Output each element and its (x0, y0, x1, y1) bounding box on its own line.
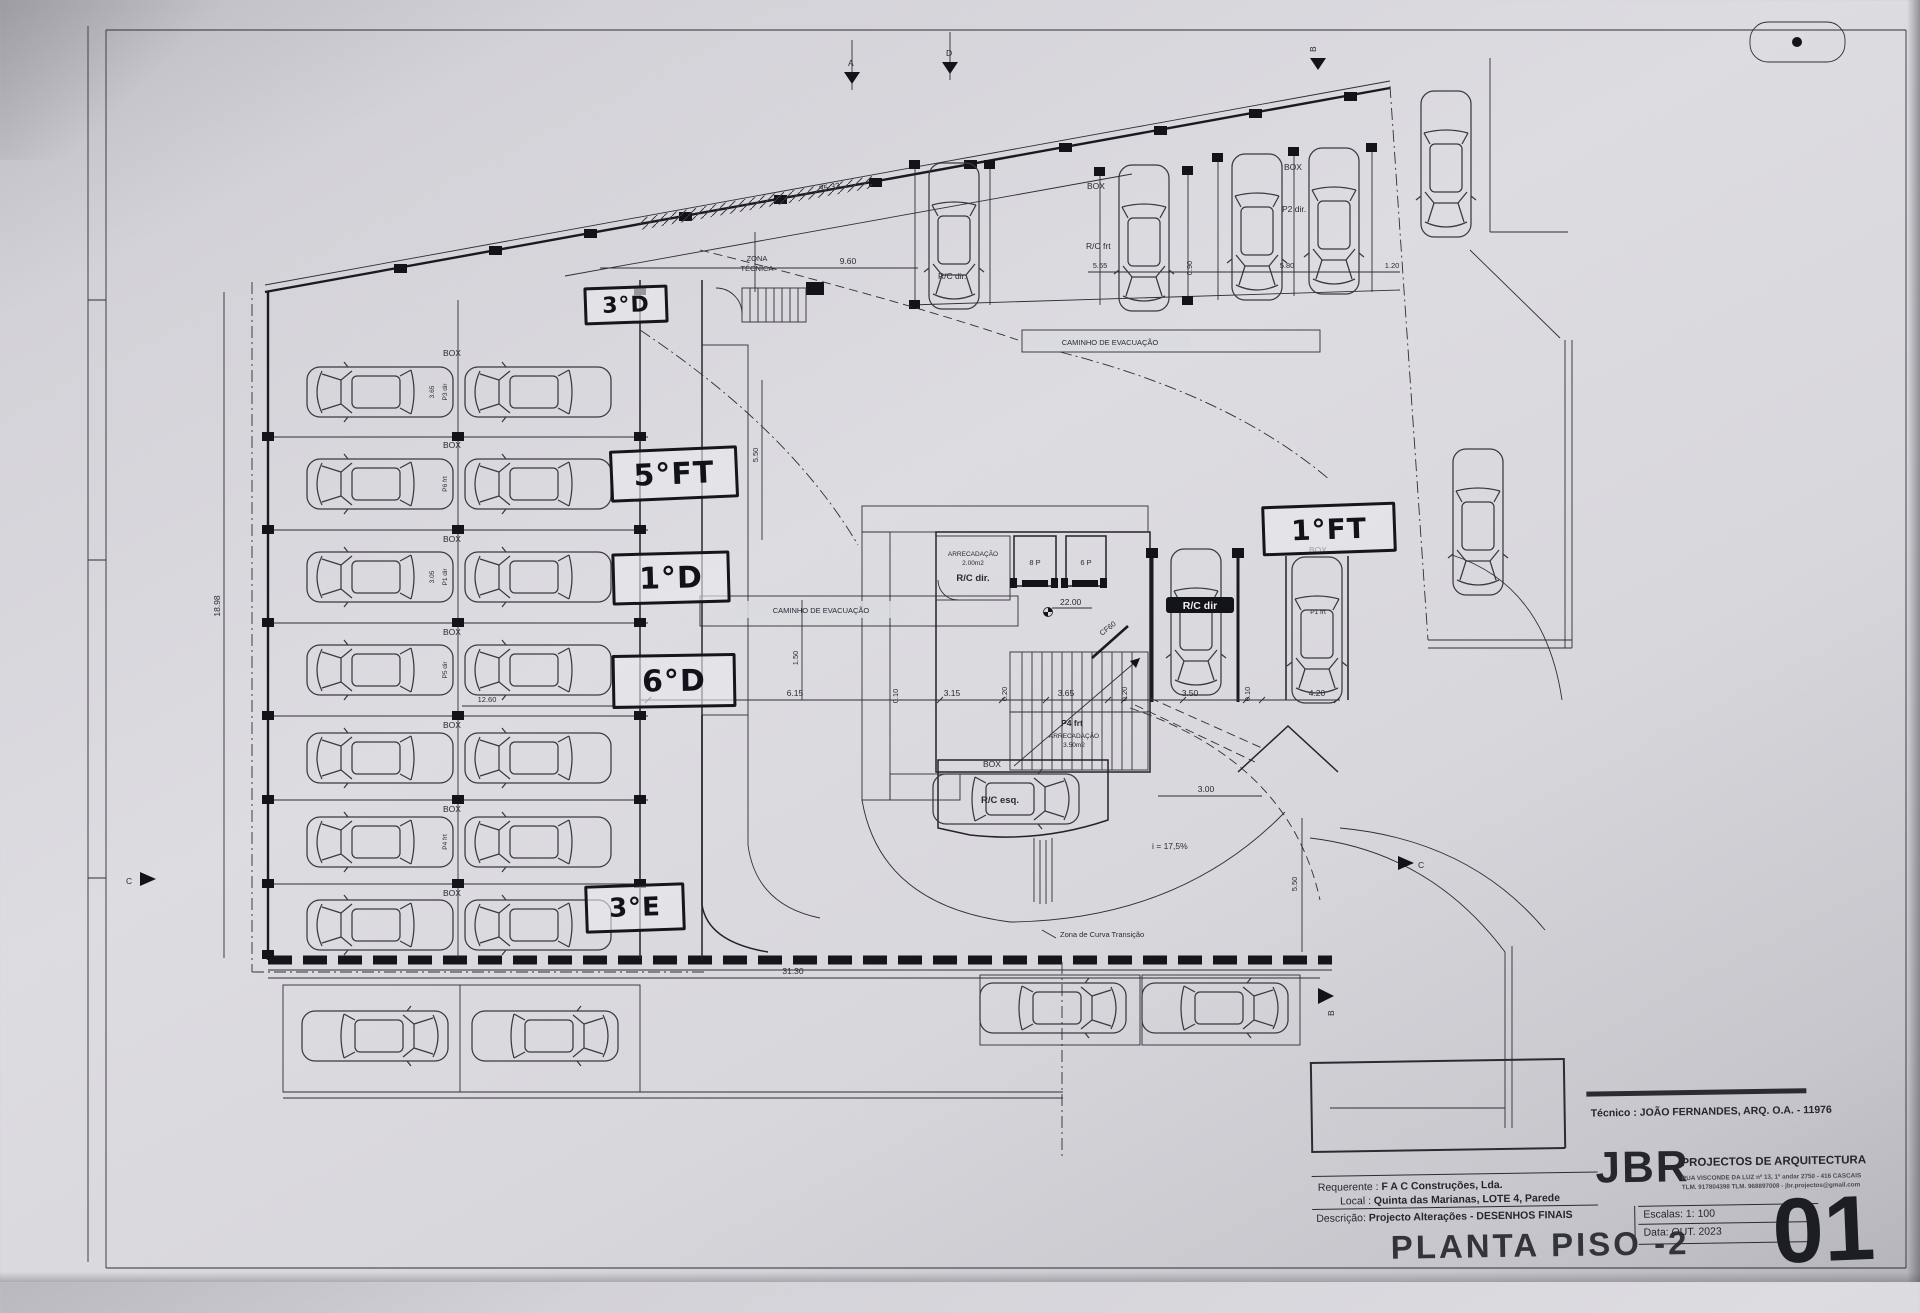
photo-corner-shadow (0, 0, 220, 160)
requerente-line: Requerente : F A C Construções, Lda. (1318, 1179, 1503, 1194)
descricao-value: Projecto Alterações - DESENHOS FINAIS (1369, 1209, 1573, 1224)
tecnico-line: Técnico : JOÃO FERNANDES, ARQ. O.A. - 11… (1591, 1104, 1832, 1120)
requerente-label: Requerente : (1318, 1181, 1379, 1194)
title-block: Técnico : JOÃO FERNANDES, ARQ. O.A. - 11… (0, 0, 1920, 1303)
escala-value: 1: 100 (1686, 1208, 1715, 1220)
descricao-label: Descrição: (1316, 1212, 1366, 1225)
data-line: Data: OUT. 2023 (1643, 1226, 1721, 1239)
requerente-value: F A C Construções, Lda. (1381, 1179, 1502, 1193)
firm-tagline: PROJECTOS DE ARQUITECTURA (1681, 1154, 1866, 1169)
sheet-number: 01 (1770, 1176, 1877, 1285)
drawing-sheet: BOX P3 dir BOX P6 frt BOX P1 dir BOX P5 … (0, 0, 1920, 1282)
escala-label: Escalas: (1643, 1208, 1683, 1221)
local-label: Local : (1340, 1195, 1371, 1207)
photo-edge-shadow (0, 1272, 1920, 1282)
descricao-line: Descrição: Projecto Alterações - DESENHO… (1316, 1209, 1573, 1225)
photo-edge-shadow (1907, 0, 1920, 1282)
firm-logo: JBR (1595, 1142, 1690, 1193)
data-label: Data: (1643, 1226, 1668, 1238)
data-value: OUT. 2023 (1671, 1226, 1721, 1239)
escala-line: Escalas: 1: 100 (1643, 1208, 1715, 1221)
